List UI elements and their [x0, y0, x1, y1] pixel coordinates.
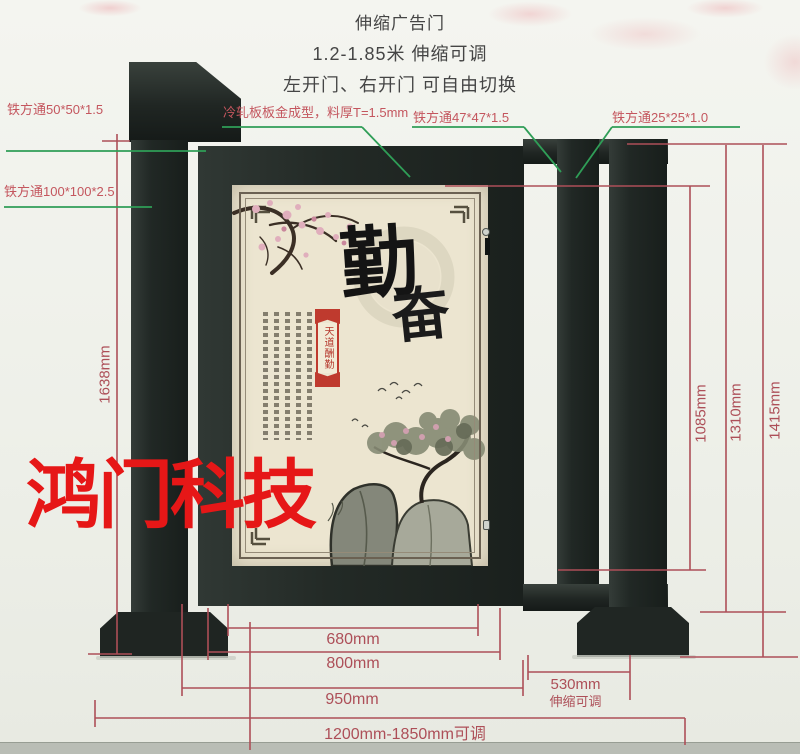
- dim-1638: 1638mm: [97, 343, 114, 407]
- seal-text: 天道酬勤: [316, 323, 339, 373]
- label-tube100: 铁方通100*100*2.5: [4, 181, 115, 200]
- product-photo: 伸缩广告门 1.2-1.85米 伸缩可调 左开门、右开门 可自由切换: [0, 0, 800, 754]
- calligraphy-fen: 奋: [389, 284, 453, 348]
- opening-note: 左开门、右开门 可自由切换: [0, 71, 800, 97]
- size-range-subtitle: 1.2-1.85米 伸缩可调: [0, 40, 800, 66]
- seal-ribbon-bottom: [315, 372, 340, 387]
- dim-680: 680mm: [298, 631, 408, 649]
- dim-total-width: 1200mm-1850mm可调: [280, 720, 530, 744]
- left-post: [131, 140, 188, 620]
- label-tube25: 铁方通25*25*1.0: [612, 107, 708, 126]
- telescopic-bar: [557, 139, 599, 609]
- lower-bolt: [483, 520, 490, 530]
- seal-ribbon-top: [315, 309, 340, 324]
- seal-ribbon: 天道酬勤: [315, 309, 340, 387]
- label-tube50: 铁方通50*50*1.5: [7, 99, 103, 118]
- lock-knob: [482, 228, 490, 236]
- right-post-base: [577, 607, 689, 657]
- lock-handle: [485, 238, 490, 255]
- left-post-base: [100, 612, 228, 658]
- dim-530-value: 530mm: [533, 676, 618, 693]
- poem-text-columns: [263, 312, 313, 440]
- dim-950: 950mm: [297, 691, 407, 709]
- right-base-shadow: [572, 655, 696, 659]
- page-title: 伸缩广告门: [0, 9, 800, 34]
- dim-1415: 1415mm: [767, 379, 784, 443]
- label-cold-rolled-panel: 冷轧板板金成型，料厚T=1.5mm: [223, 102, 408, 121]
- left-base-shadow: [96, 656, 236, 660]
- right-post: [609, 139, 667, 611]
- dim-800: 800mm: [298, 655, 408, 673]
- dim-530-note: 伸缩可调: [533, 693, 618, 710]
- dim-530: 530mm 伸缩可调: [533, 676, 618, 710]
- watermark-text: 鸿门科技: [26, 458, 314, 533]
- dim-1310: 1310mm: [728, 381, 745, 445]
- label-tube47: 铁方通47*47*1.5: [413, 107, 509, 126]
- dim-1085: 1085mm: [693, 382, 710, 446]
- gate-leaf-frame: 勤 奋 天道酬勤: [198, 146, 524, 606]
